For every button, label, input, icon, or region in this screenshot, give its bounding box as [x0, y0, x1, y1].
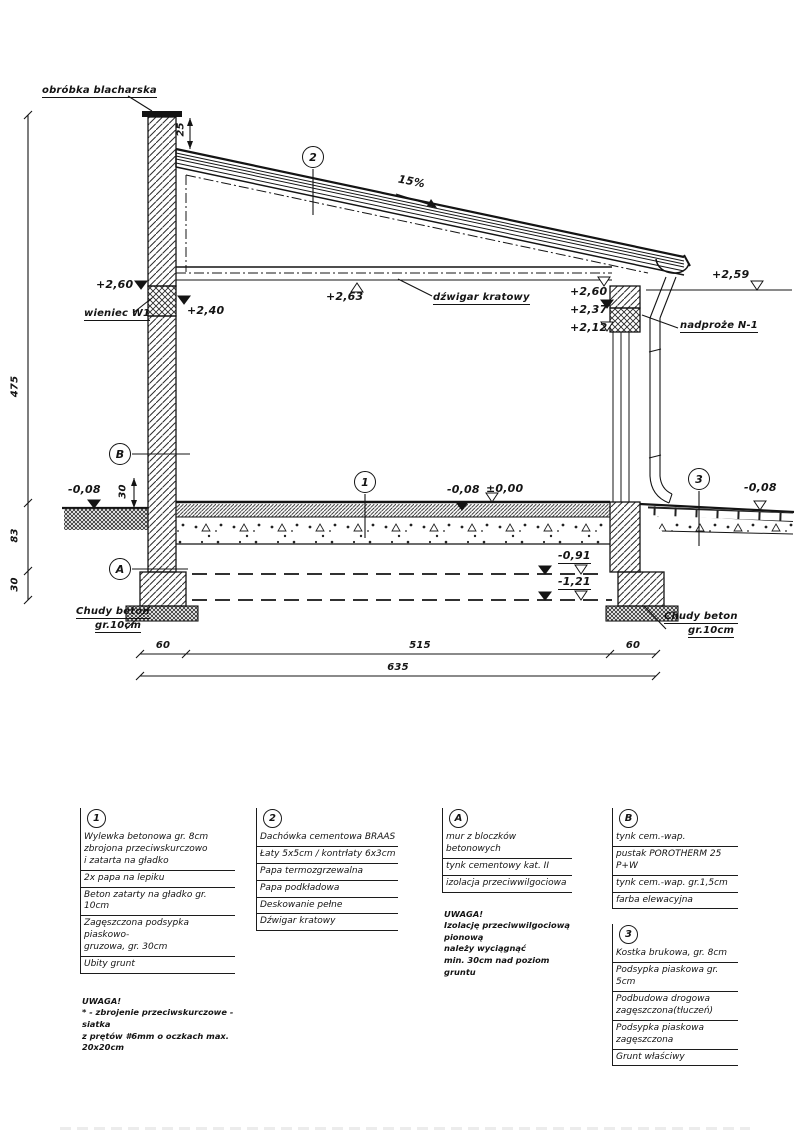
legend-column-A: A mur z bloczków betonowych tynk cemento… [442, 808, 572, 978]
gutter-downpipe [646, 255, 792, 503]
legend-column-B3: B tynk cem.-wap. pustak POROTHERM 25 P+W… [612, 808, 738, 1066]
foundation-dashed-levels [192, 574, 612, 600]
legend-badge-1: 1 [87, 809, 106, 828]
legend-column-2: 2 Dachówka cementowa BRAAS Łaty 5x5cm / … [256, 808, 398, 931]
elevation-plus-2-63: +2,63 [326, 291, 363, 303]
legend-item: Wylewka betonowa gr. 8cm zbrojona przeci… [81, 830, 235, 871]
elevation-plus-2-37: +2,37 [570, 304, 607, 316]
level-markers [88, 277, 766, 600]
architectural-section-sheet: 2 1 3 B A obróbka blacharska 15% +2,60 w… [0, 0, 800, 1132]
elevation-plus-2-12: +2,12 [570, 322, 607, 334]
legend-badge-3: 3 [619, 925, 638, 944]
callout-floor-1: 1 [354, 471, 376, 493]
legend-item: Dźwigar kratowy [257, 914, 398, 931]
elevation-plus-2-60-left: +2,60 [96, 279, 133, 291]
elevation-zero: ±0,00 [486, 483, 523, 495]
elevation-plus-2-59: +2,59 [712, 269, 749, 281]
legend-item: pustak POROTHERM 25 P+W [613, 847, 738, 876]
legend-item: Beton zatarty na gładko gr. 10cm [81, 888, 235, 917]
elevation-minus-0-08-left: -0,08 [68, 484, 101, 496]
legend-item: Papa termozgrzewalna [257, 864, 398, 881]
legend-item: Podsypka piaskowa zagęszczona [613, 1021, 738, 1050]
callout-paving-3: 3 [688, 468, 710, 490]
truss-label: dźwigar kratowy [433, 292, 530, 305]
legend-item: tynk cem.-wap. gr.1,5cm [613, 876, 738, 893]
lean-concrete-label-left: Chudy beton [76, 606, 150, 619]
elevation-minus-1-21: -1,21 [558, 576, 591, 590]
floor-slab [176, 502, 610, 544]
legend-item: izolacja przeciwwilgociowa [443, 876, 572, 893]
elevation-minus-0-08-right: -0,08 [744, 482, 777, 494]
legend-column-1: 1 Wylewka betonowa gr. 8cm zbrojona prze… [80, 808, 235, 1054]
dim-635: 635 [373, 662, 423, 673]
legend-item: tynk cementowy kat. II [443, 859, 572, 876]
dim-25: 25 [176, 115, 187, 145]
dim-60-left: 60 [148, 640, 178, 651]
elevation-minus-0-08-mid: -0,08 [447, 484, 480, 496]
legend-badge-B: B [619, 809, 638, 828]
right-wall [606, 286, 678, 621]
dim-30: 30 [10, 570, 21, 600]
legend-item: Podbudowa drogowa zagęszczona(tłuczeń) [613, 992, 738, 1021]
elevation-minus-0-91: -0,91 [558, 550, 591, 564]
legend-badge-A: A [449, 809, 468, 828]
ring-beam-label: wieniec W1 [84, 308, 150, 321]
lean-concrete-thickness-left: gr.10cm [95, 620, 141, 633]
callout-wall-B: B [109, 443, 131, 465]
roof-layers [176, 149, 684, 275]
legend-item: Ubity grunt [81, 957, 235, 974]
legend-item: Deskowanie pełne [257, 898, 398, 915]
elevation-plus-2-60-right: +2,60 [570, 286, 607, 298]
legend-item: Dachówka cementowa BRAAS [257, 830, 398, 847]
section-drawing-linework [0, 0, 800, 710]
lean-concrete-thickness-right: gr.10cm [688, 625, 734, 638]
legend-item: mur z bloczków betonowych [443, 830, 572, 859]
flashing-label: obróbka blacharska [42, 85, 157, 98]
lean-concrete-label-right: Chudy beton [664, 611, 738, 624]
legend-item: 2x papa na lepiku [81, 871, 235, 888]
ground-left [62, 508, 148, 530]
callout-foundation-A: A [109, 558, 131, 580]
legend-item: Zagęszczona podsypka piaskowo- gruzowa, … [81, 916, 235, 957]
dim-83: 83 [10, 521, 21, 551]
dim-515: 515 [395, 640, 445, 651]
legend-item: farba elewacyjna [613, 893, 738, 910]
legend-item: Papa podkładowa [257, 881, 398, 898]
page-bottom-cutoff-artifact [60, 1127, 750, 1130]
paving-right [640, 504, 794, 534]
legend-badge-2: 2 [263, 809, 282, 828]
legend-item: Grunt właściwy [613, 1050, 738, 1067]
legend-item: tynk cem.-wap. [613, 830, 738, 847]
truss-bottom-chord [176, 267, 612, 280]
legend-item: Podsypka piaskowa gr. 5cm [613, 963, 738, 992]
dim-60-right: 60 [618, 640, 648, 651]
legend-item: Łaty 5x5cm / kontrłaty 6x3cm [257, 847, 398, 864]
legend-item: Kostka brukowa, gr. 8cm [613, 946, 738, 963]
elevation-plus-2-40: +2,40 [187, 305, 224, 317]
callout-roof-2: 2 [302, 146, 324, 168]
legend-note-1: UWAGA! * - zbrojenie przeciwskurczowe - … [80, 996, 235, 1054]
legend-note-A: UWAGA! Izolację przeciwwilgociową pionow… [442, 909, 572, 979]
lintel-label: nadproże N-1 [680, 320, 758, 333]
dim-30-ground: 30 [118, 477, 129, 507]
dimension-lines [24, 111, 660, 680]
dim-475: 475 [10, 372, 21, 402]
